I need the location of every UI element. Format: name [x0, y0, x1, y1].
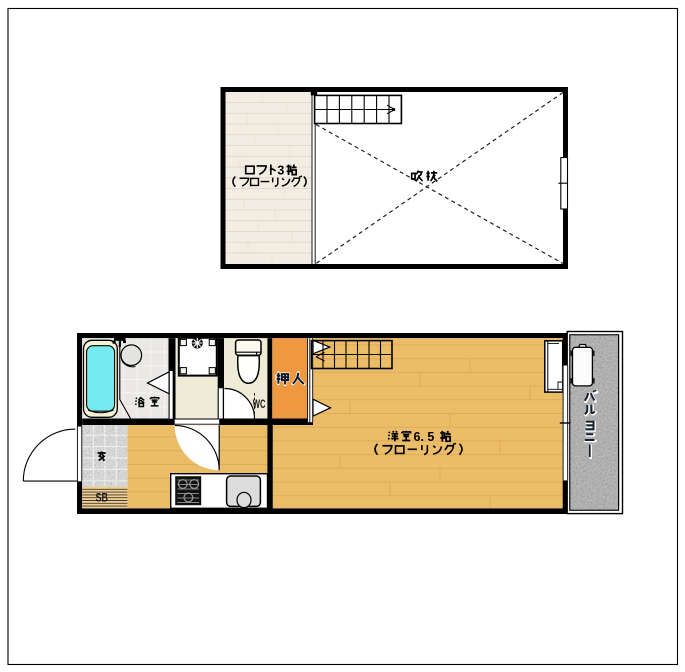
- svg-text:SB: SB: [96, 492, 109, 504]
- svg-text:6. 5: 6. 5: [414, 430, 435, 444]
- svg-text:3: 3: [277, 163, 284, 177]
